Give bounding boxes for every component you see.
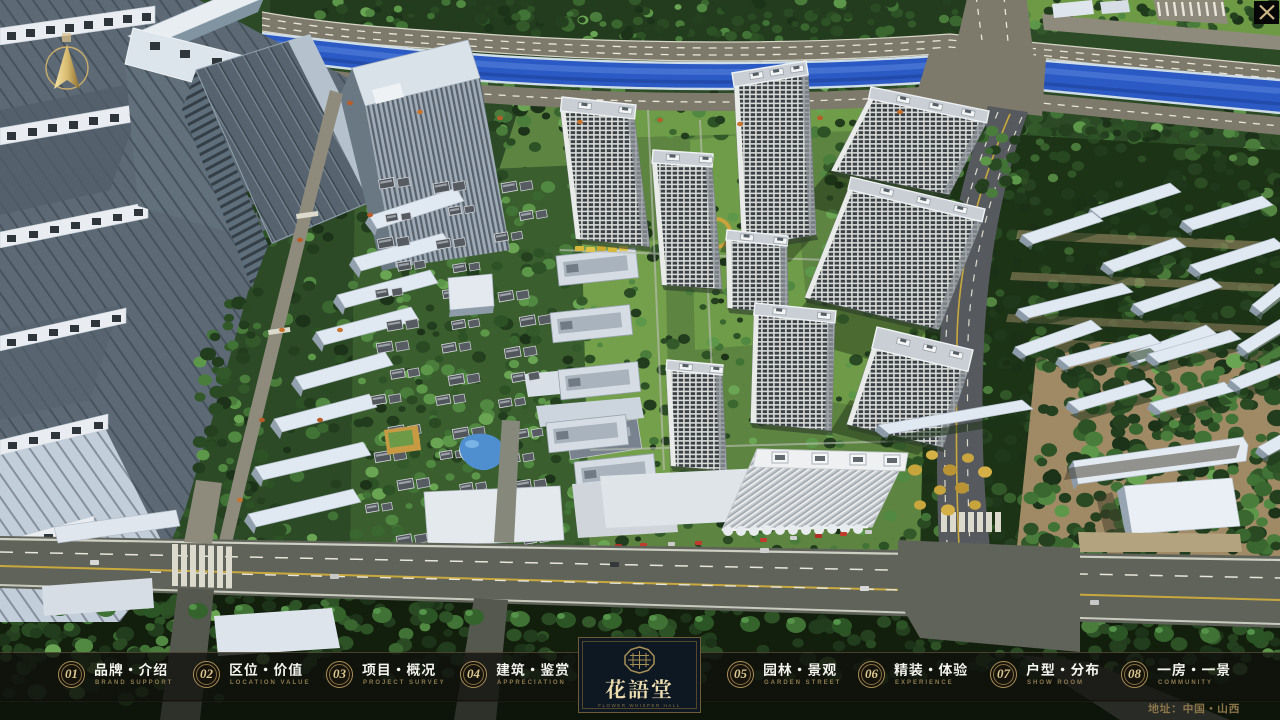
svg-text:FLOWER WHISPER HALL: FLOWER WHISPER HALL [598,703,681,708]
